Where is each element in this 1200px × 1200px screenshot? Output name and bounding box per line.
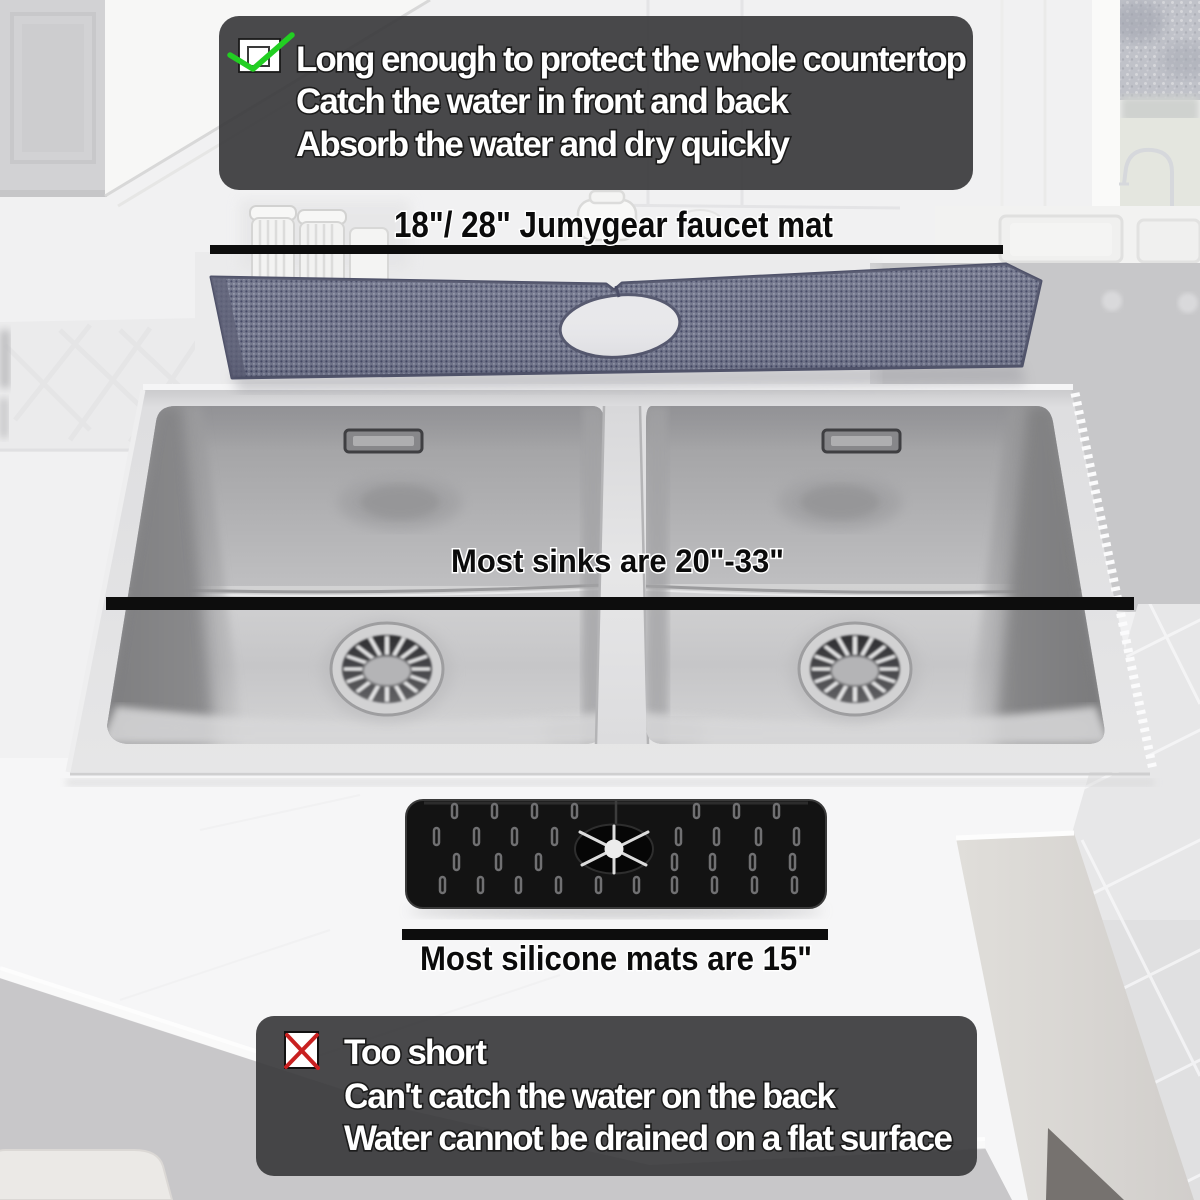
svg-text:Long enough to protect the who: Long enough to protect the whole counter… — [296, 40, 967, 79]
svg-text:Water cannot be drained on a f: Water cannot be drained on a flat surfac… — [344, 1119, 953, 1158]
svg-text:Can't catch the water on the b: Can't catch the water on the back — [344, 1077, 837, 1116]
svg-text:Most sinks are 20"-33": Most sinks are 20"-33" — [451, 543, 784, 579]
svg-text:Too short: Too short — [344, 1033, 487, 1072]
svg-text:Absorb the water and dry quick: Absorb the water and dry quickly — [296, 125, 791, 164]
svg-text:Most silicone mats are 15": Most silicone mats are 15" — [420, 940, 812, 978]
svg-text:18"/ 28" Jumygear faucet mat: 18"/ 28" Jumygear faucet mat — [394, 204, 833, 245]
svg-text:Catch the water in front and b: Catch the water in front and back — [296, 82, 790, 121]
